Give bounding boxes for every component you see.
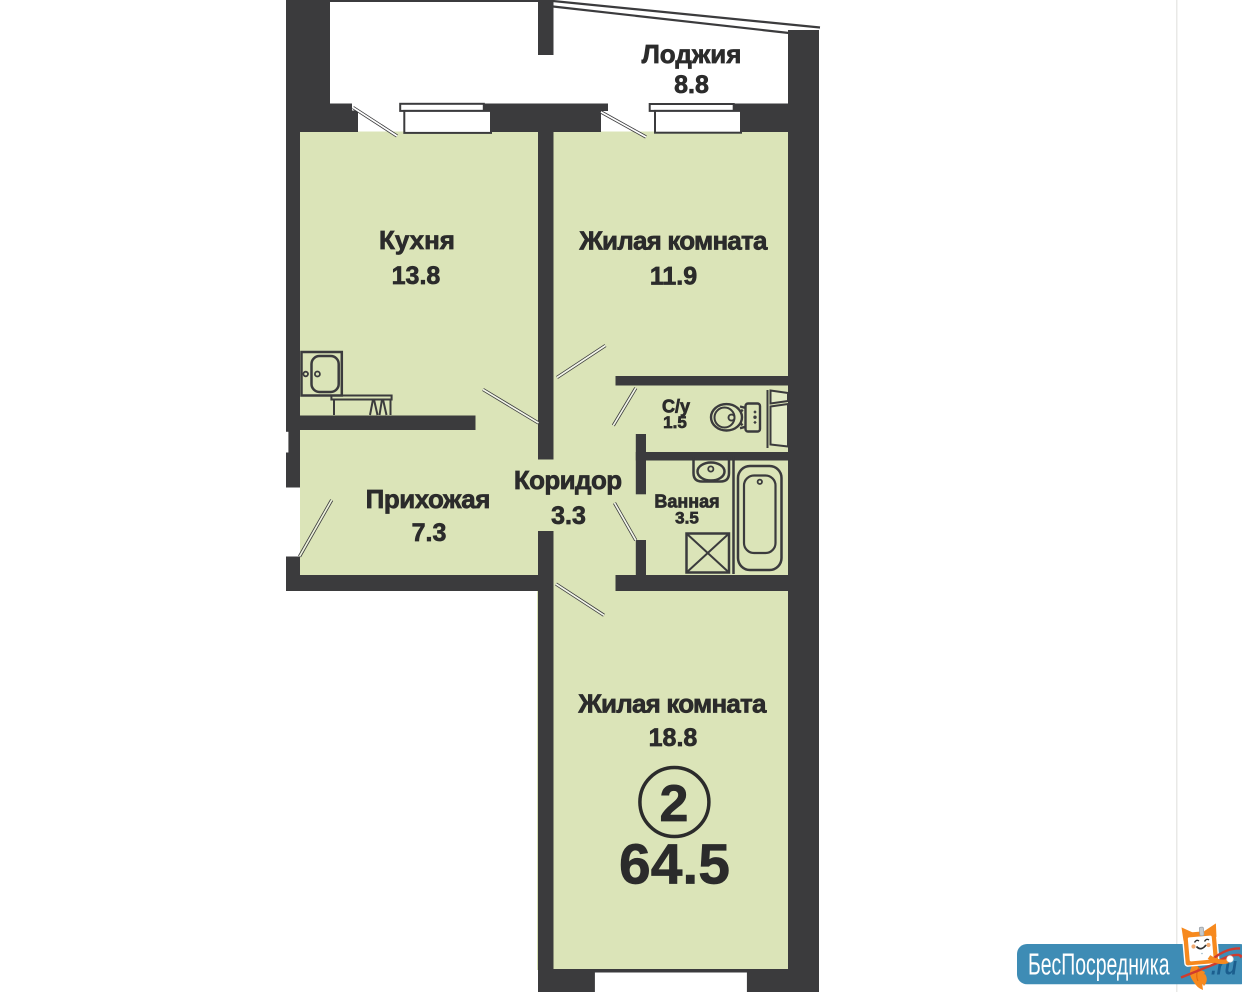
svg-text:Лоджия: Лоджия — [642, 39, 742, 69]
svg-text:1.5: 1.5 — [663, 413, 687, 432]
svg-text:Коридор: Коридор — [514, 465, 622, 495]
svg-text:64.5: 64.5 — [619, 833, 730, 897]
svg-text:Жилая комната: Жилая комната — [577, 689, 767, 719]
svg-text:2: 2 — [660, 775, 689, 833]
svg-text:3.5: 3.5 — [675, 509, 699, 528]
svg-text:БесПосредника: БесПосредника — [1028, 947, 1170, 982]
svg-text:Кухня: Кухня — [379, 225, 455, 255]
svg-text:11.9: 11.9 — [650, 263, 697, 291]
svg-text:7.3: 7.3 — [412, 519, 447, 547]
svg-text:18.8: 18.8 — [649, 724, 698, 752]
svg-text:13.8: 13.8 — [392, 262, 441, 290]
svg-text:8.8: 8.8 — [674, 71, 709, 99]
svg-text:Жилая комната: Жилая комната — [578, 226, 768, 256]
svg-text:3.3: 3.3 — [551, 502, 586, 530]
svg-text:Прихожая: Прихожая — [366, 484, 490, 514]
